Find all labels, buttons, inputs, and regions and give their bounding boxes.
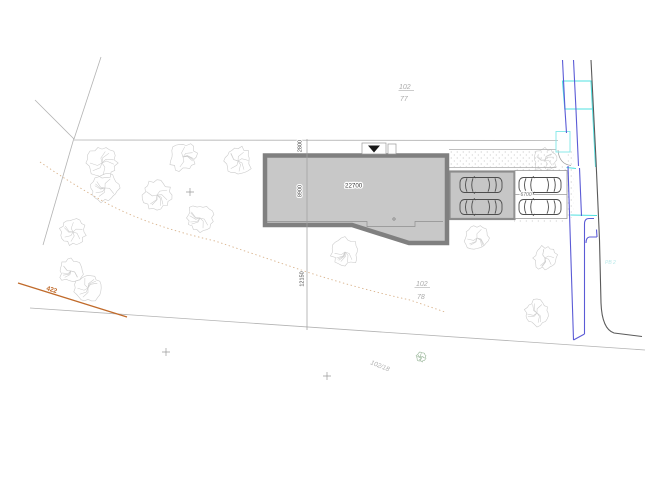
dim-building-width: 22700 [345,183,363,190]
parcel-sub-north: 77 [400,96,409,103]
entrance-marker [362,143,396,154]
boundary-line-northwest-b [35,100,74,139]
tree-icon [86,148,118,179]
building-footprint [265,156,447,244]
road-note-label: PB 2 [605,260,616,266]
parcel-number-north: 102 [399,84,411,91]
dim-parking-depth: 6700 [521,192,532,198]
tree-icon [464,226,489,250]
road-east-edge [591,60,642,337]
tree-icon [59,219,86,246]
survey-cross-icon [162,348,170,356]
tree-icon [170,144,198,172]
road-inner-line [574,60,582,216]
tree-icon [60,258,84,282]
labels: 2800 8900 12150 22700 6700 102 77 102 78… [45,84,616,373]
tree-icon [524,299,548,327]
boundary-line-west [43,138,74,245]
tree-icon [187,206,214,233]
tree-icon [142,180,172,211]
driveway-entry-box [556,132,570,153]
tree-icon [330,237,357,266]
parcel-number-southwest: 102/18 [369,359,390,373]
survey-cross-icon [186,188,194,196]
tree-icon [91,173,120,202]
road-crosswalk [563,81,593,109]
dim-south-distance: 12150 [300,271,306,286]
site-plan-drawing: 2800 8900 12150 22700 6700 102 77 102 78… [0,0,657,504]
building [265,156,447,244]
contour-elevation-label: 422 [45,285,58,295]
site-plan-canvas: 2800 8900 12150 22700 6700 102 77 102 78… [0,0,657,504]
boundary-line-north [74,140,558,141]
road-lane-pocket [574,219,598,341]
survey-cross-icon [323,372,331,380]
parcel-number-south: 102 [416,281,428,288]
boundary-line-northwest-a [74,57,101,139]
entrance-marker-small-box [388,144,396,154]
road [556,60,642,340]
dim-building-depth: 8900 [298,185,304,197]
contour-line-422 [18,283,127,317]
tree-icon [224,146,252,174]
tree-icon [74,275,101,301]
garage-footprint [450,172,515,220]
boundary-line-south [30,308,645,350]
parcel-sub-south: 78 [417,294,425,301]
tree-icon [533,246,558,270]
bush-icon [416,352,426,362]
dim-front-setback: 2800 [298,140,304,152]
